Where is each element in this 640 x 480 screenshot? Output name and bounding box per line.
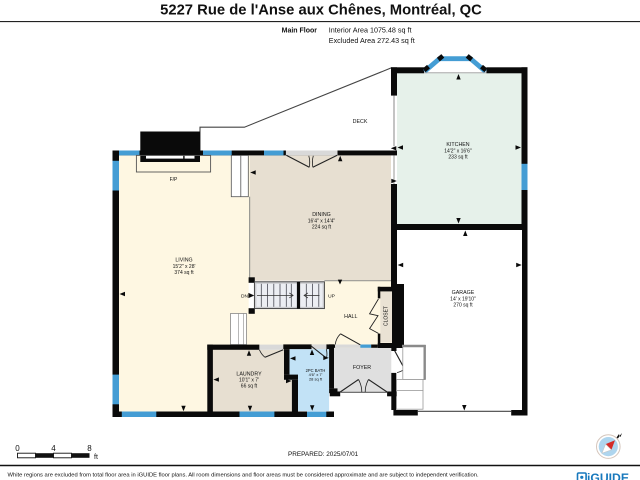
svg-text:224 sq ft: 224 sq ft (312, 225, 332, 231)
svg-text:Excluded Area 272.43 sq ft: Excluded Area 272.43 sq ft (329, 36, 415, 45)
svg-text:66 sq ft: 66 sq ft (241, 384, 258, 390)
svg-text:4: 4 (51, 444, 56, 453)
svg-text:iGUIDE: iGUIDE (587, 471, 629, 480)
svg-text:14'2" x 16'6": 14'2" x 16'6" (444, 148, 472, 154)
svg-text:16'4" x 14'4": 16'4" x 14'4" (308, 218, 336, 224)
svg-text:HALL: HALL (344, 314, 357, 320)
svg-text:14' x 19'10": 14' x 19'10" (450, 296, 476, 302)
svg-text:0: 0 (15, 444, 20, 453)
svg-text:DECK: DECK (353, 119, 368, 125)
svg-text:UP: UP (328, 293, 335, 299)
svg-text:374 sq ft: 374 sq ft (174, 270, 194, 276)
svg-text:8: 8 (87, 444, 92, 453)
svg-text:5227 Rue de l'Anse aux Chênes,: 5227 Rue de l'Anse aux Chênes, Montréal,… (160, 3, 482, 19)
svg-text:GARAGE: GARAGE (452, 290, 475, 296)
svg-text:15'2" x 28': 15'2" x 28' (173, 264, 196, 270)
svg-text:PREPARED: 2025/07/01: PREPARED: 2025/07/01 (288, 451, 359, 458)
svg-text:White regions are excluded fro: White regions are excluded from total fl… (8, 472, 479, 478)
svg-text:ft: ft (94, 454, 98, 461)
svg-text:28 sq ft: 28 sq ft (309, 377, 323, 382)
svg-text:10'1" x 7': 10'1" x 7' (239, 378, 259, 384)
svg-text:LAUNDRY: LAUNDRY (236, 371, 262, 377)
svg-text:Interior Area 1075.48 sq ft: Interior Area 1075.48 sq ft (329, 25, 412, 34)
svg-text:DN: DN (241, 293, 249, 299)
svg-text:233 sq ft: 233 sq ft (448, 155, 468, 161)
svg-text:270 sq ft: 270 sq ft (453, 303, 473, 309)
svg-text:DINING: DINING (312, 212, 331, 218)
svg-text:LIVING: LIVING (175, 258, 192, 264)
svg-text:Main Floor: Main Floor (282, 27, 318, 34)
svg-text:FOYER: FOYER (353, 365, 371, 371)
svg-text:CLOSET: CLOSET (384, 306, 390, 326)
svg-text:KITCHEN: KITCHEN (446, 142, 469, 148)
svg-text:F/P: F/P (170, 177, 178, 183)
